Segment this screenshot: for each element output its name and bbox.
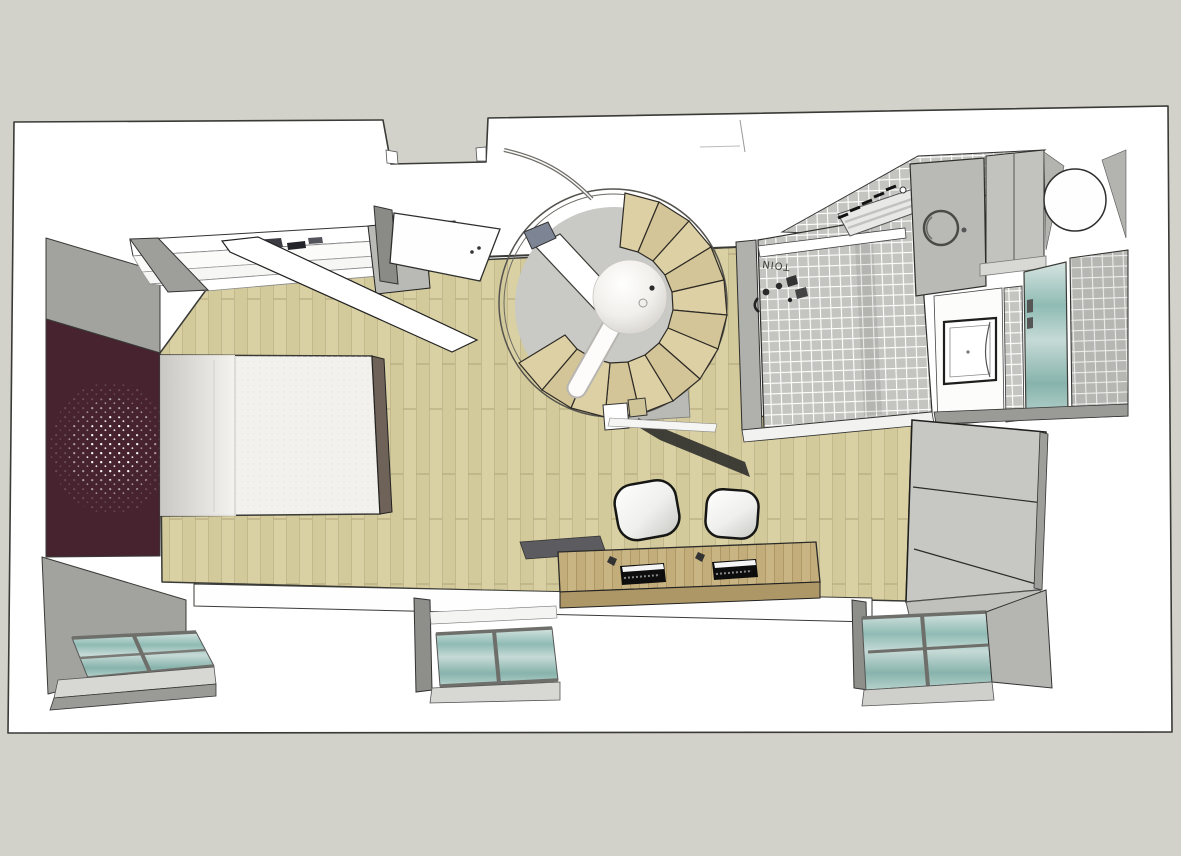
stair-newel-ball xyxy=(593,260,667,334)
wall-cabinets xyxy=(980,150,1046,276)
bed-quilt-texture xyxy=(235,356,380,516)
keyboard-right xyxy=(712,559,758,580)
chair-right xyxy=(704,488,759,540)
shower-glass-door xyxy=(1024,262,1068,418)
notch-jamb-left xyxy=(386,150,398,164)
keyboard-left xyxy=(620,563,666,585)
door-handle-dot-1 xyxy=(470,250,474,254)
wardrobe-body xyxy=(906,420,1046,602)
round-table-top xyxy=(1044,169,1106,231)
tiled-wall-right-shade xyxy=(1070,250,1128,418)
speckle-decor xyxy=(50,382,174,514)
stair-first-tread xyxy=(628,398,647,417)
bed-pillow-zone xyxy=(160,355,235,516)
ball-dot xyxy=(649,285,654,290)
ball-ring xyxy=(639,299,647,307)
floor-plan-canvas: TOIN xyxy=(0,0,1181,856)
tiled-column xyxy=(1004,286,1024,422)
bed xyxy=(160,355,392,516)
notch-jamb-right xyxy=(476,147,486,161)
chair-left xyxy=(612,477,683,543)
washing-machine xyxy=(910,158,986,296)
floor-plan-render: TOIN xyxy=(0,0,1181,856)
door-handle-dot-2 xyxy=(477,246,481,250)
glass-door-handle xyxy=(1027,299,1033,313)
window-center-reveal-left xyxy=(414,598,432,692)
washbasin xyxy=(944,318,996,384)
closet-item-3 xyxy=(308,237,323,244)
